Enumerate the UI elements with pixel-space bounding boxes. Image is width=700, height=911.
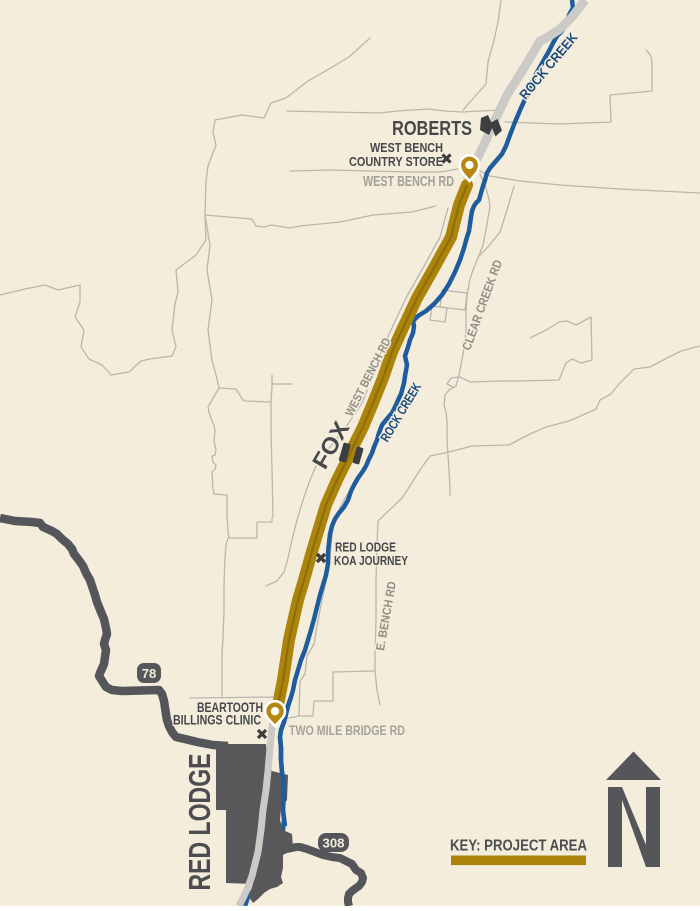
svg-text:RED LODGE: RED LODGE (335, 541, 396, 555)
svg-text:78: 78 (142, 666, 156, 681)
svg-text:BILLINGS CLINIC: BILLINGS CLINIC (173, 713, 261, 728)
svg-text:TWO MILE BRIDGE RD: TWO MILE BRIDGE RD (289, 723, 405, 738)
svg-text:ROBERTS: ROBERTS (392, 117, 472, 140)
svg-text:KEY: PROJECT AREA: KEY: PROJECT AREA (450, 838, 587, 855)
svg-text:COUNTRY STORE: COUNTRY STORE (349, 155, 443, 169)
svg-text:WEST BENCH: WEST BENCH (370, 141, 443, 155)
svg-text:RED LODGE: RED LODGE (182, 754, 217, 891)
svg-text:KOA JOURNEY: KOA JOURNEY (334, 554, 409, 568)
svg-text:WEST BENCH RD: WEST BENCH RD (363, 174, 454, 190)
svg-text:308: 308 (323, 836, 345, 851)
